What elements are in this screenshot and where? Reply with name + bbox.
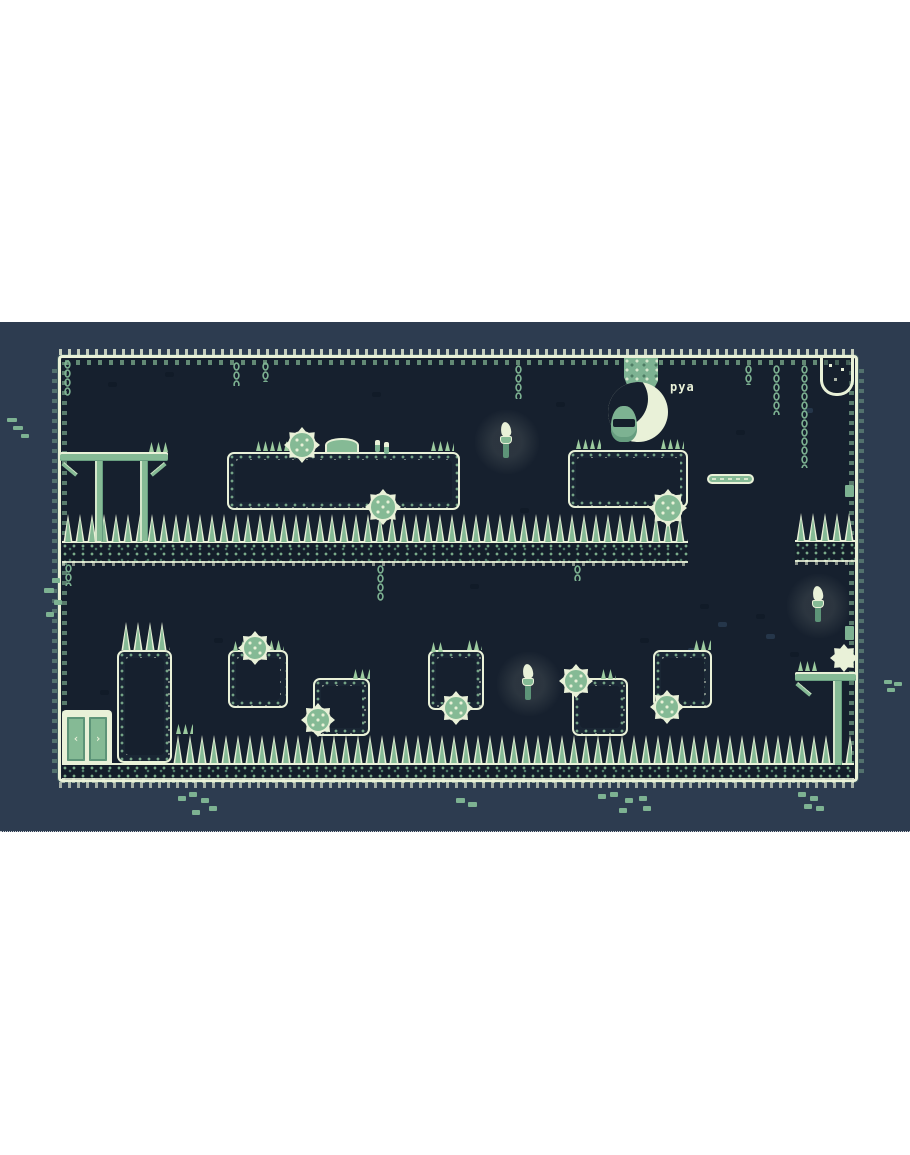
character-eyes [613, 419, 635, 427]
exit-door[interactable]: ‹ › [62, 710, 112, 763]
door-handle-right: › [89, 733, 107, 745]
game-viewport[interactable]: ‹ › pya [0, 322, 910, 832]
speech-text: pya [670, 380, 695, 394]
door-handle-left: ‹ [67, 733, 85, 745]
gallows-structure [60, 452, 170, 544]
letterbox-bottom [0, 833, 910, 1155]
right-table-structure [795, 642, 860, 766]
letterbox-top [0, 0, 910, 322]
whisker-line [656, 404, 658, 430]
structures-layer: ‹ › pya [0, 322, 910, 831]
character-body [611, 406, 637, 442]
screenshot-stage: ‹ › pya [0, 0, 910, 1155]
corner-alcove [820, 358, 854, 396]
player-character[interactable]: pya [596, 374, 706, 449]
spike-plant [830, 644, 858, 672]
